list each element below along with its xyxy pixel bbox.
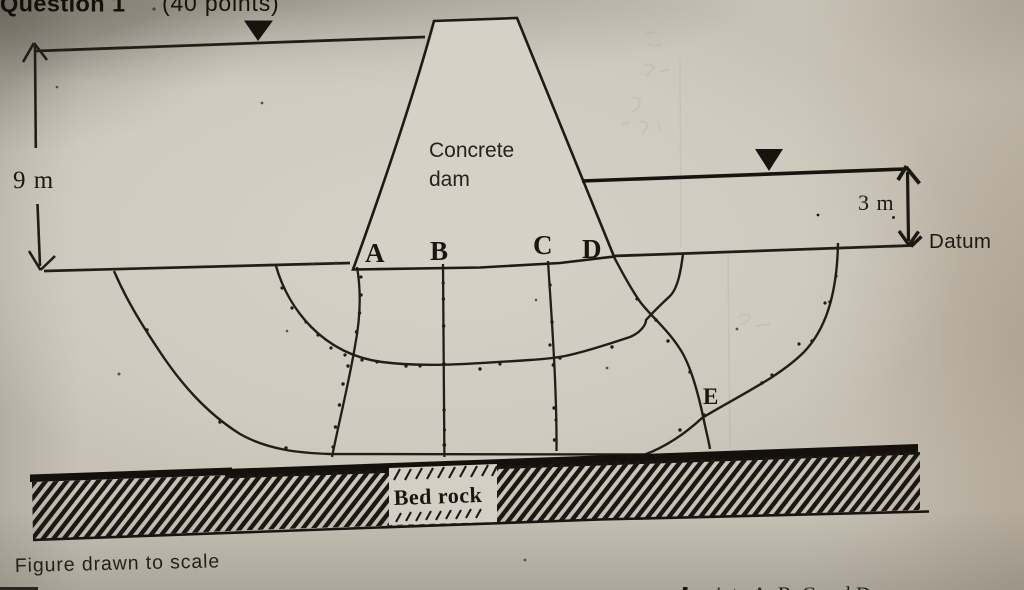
svg-text:Concrete: Concrete bbox=[429, 139, 514, 162]
svg-text:B: B bbox=[430, 236, 448, 266]
svg-text:dam: dam bbox=[429, 168, 470, 191]
svg-text:C: C bbox=[533, 230, 553, 260]
svg-text:3 m: 3 m bbox=[858, 190, 895, 215]
svg-text:Bed rock: Bed rock bbox=[393, 482, 483, 510]
svg-text:Question 1: Question 1 bbox=[0, 0, 125, 17]
svg-text:Figure drawn to scale: Figure drawn to scale bbox=[15, 550, 221, 577]
svg-text:A: A bbox=[365, 238, 385, 268]
svg-text:E: E bbox=[703, 384, 718, 409]
svg-text:Datum: Datum bbox=[929, 230, 991, 253]
svg-text:D: D bbox=[582, 234, 602, 264]
svg-text:9 m: 9 m bbox=[13, 167, 54, 194]
svg-text:into A, B, C and D: into A, B, C and D bbox=[716, 584, 871, 590]
svg-text:(40 points): (40 points) bbox=[162, 0, 279, 16]
